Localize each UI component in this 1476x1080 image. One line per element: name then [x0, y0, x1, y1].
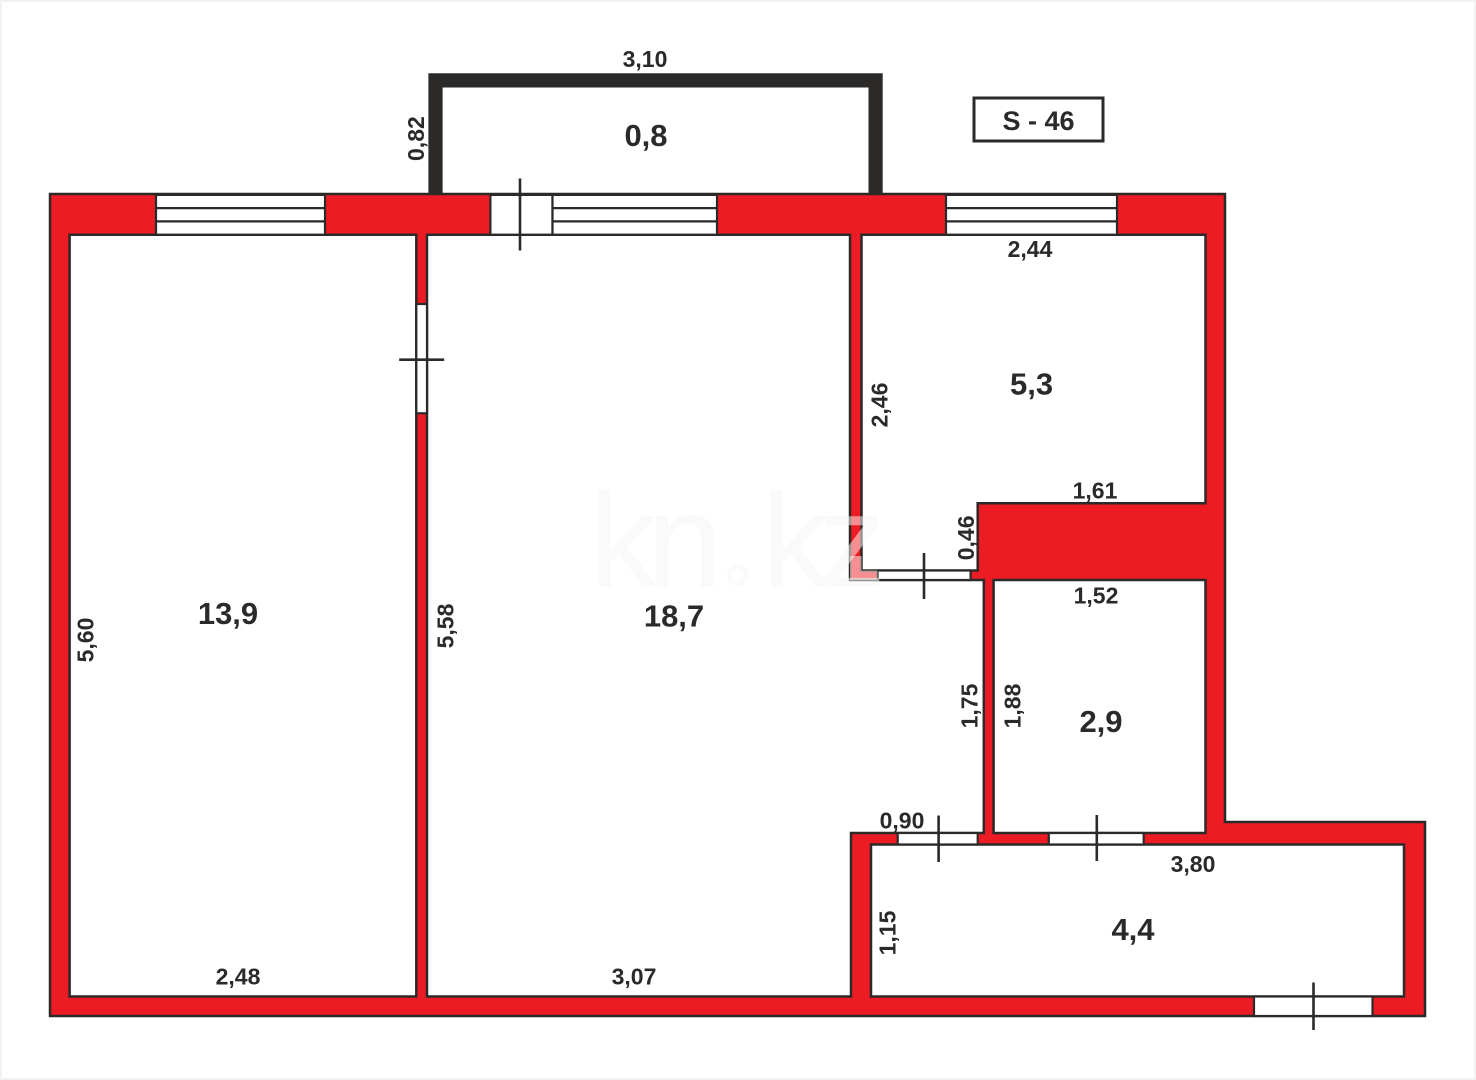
svg-text:5,58: 5,58: [432, 603, 458, 648]
svg-text:13,9: 13,9: [198, 596, 258, 631]
svg-text:5,3: 5,3: [1010, 366, 1053, 401]
svg-text:0,46: 0,46: [953, 516, 979, 561]
svg-text:2,44: 2,44: [1008, 236, 1053, 262]
svg-text:4,4: 4,4: [1111, 912, 1155, 947]
svg-text:3,10: 3,10: [623, 46, 668, 72]
svg-text:2,9: 2,9: [1079, 704, 1122, 739]
svg-text:S - 46: S - 46: [1002, 106, 1074, 136]
svg-text:3,80: 3,80: [1171, 851, 1216, 877]
svg-text:2,46: 2,46: [866, 383, 892, 428]
svg-text:1,52: 1,52: [1074, 582, 1119, 608]
svg-text:3,07: 3,07: [612, 963, 657, 989]
svg-text:5,60: 5,60: [72, 618, 98, 663]
svg-text:0,90: 0,90: [880, 807, 925, 833]
svg-text:1,61: 1,61: [1073, 477, 1118, 503]
svg-text:0,82: 0,82: [403, 116, 429, 161]
svg-text:1,88: 1,88: [999, 683, 1025, 728]
svg-text:1,75: 1,75: [956, 683, 982, 728]
svg-text:1,15: 1,15: [874, 910, 900, 955]
svg-text:kn: kn: [590, 467, 722, 616]
svg-text:kz: kz: [762, 467, 886, 616]
svg-text:2,48: 2,48: [216, 963, 261, 989]
svg-text:0,8: 0,8: [624, 118, 667, 153]
